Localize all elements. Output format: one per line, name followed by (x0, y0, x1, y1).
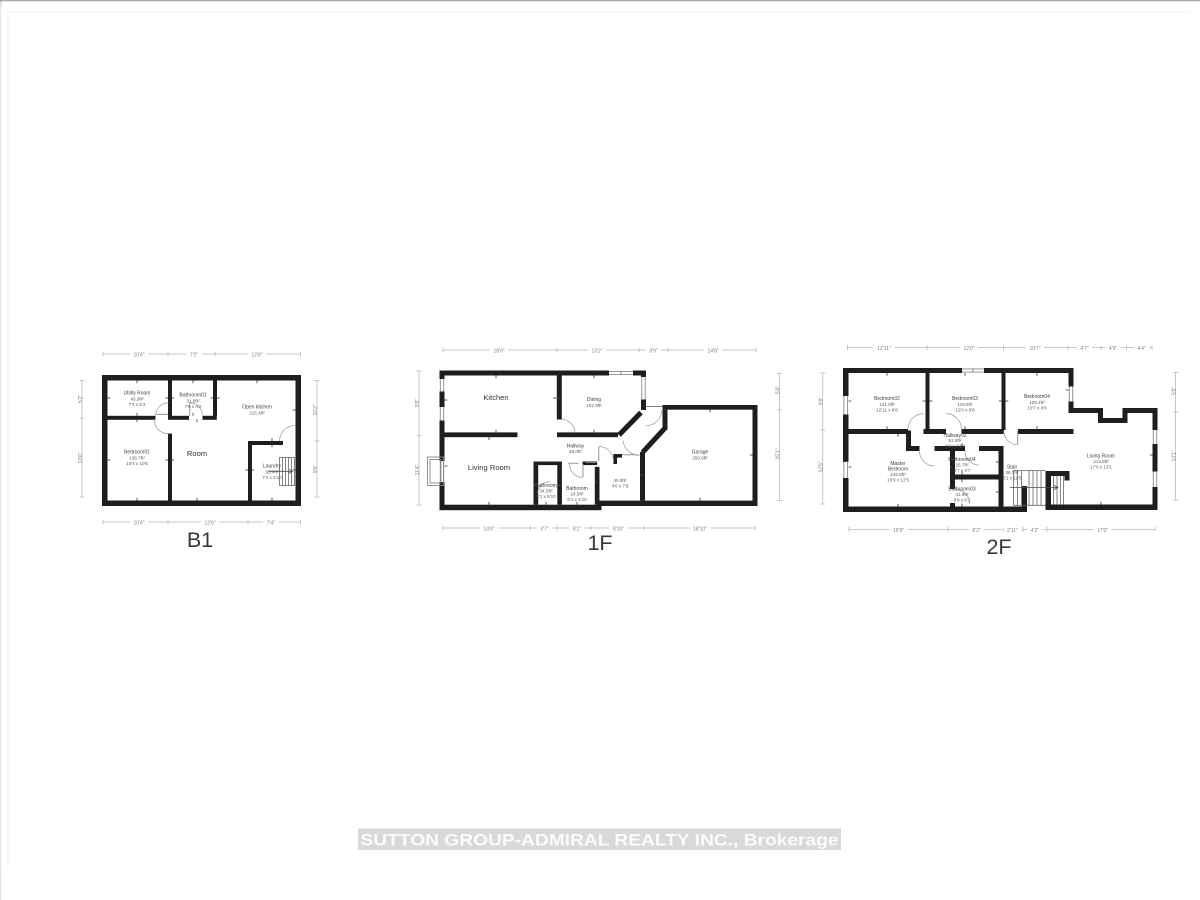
svg-text:12'5": 12'5" (819, 461, 825, 472)
svg-text:12'0": 12'0" (963, 346, 974, 352)
svg-text:4'4": 4'4" (1137, 346, 1146, 352)
svg-text:4'9": 4'9" (1109, 346, 1118, 352)
svg-text:212.8ft²: 212.8ft² (1093, 459, 1109, 464)
svg-text:4'7": 4'7" (1080, 346, 1089, 352)
svg-text:131.0ft²: 131.0ft² (879, 402, 895, 407)
svg-text:16'9": 16'9" (893, 528, 904, 534)
svg-text:41.9ft²: 41.9ft² (955, 492, 968, 497)
svg-text:12'0 x 9'8: 12'0 x 9'8 (955, 408, 975, 413)
svg-text:146.9ft²: 146.9ft² (890, 472, 906, 477)
svg-text:5'6": 5'6" (775, 386, 781, 395)
svg-text:B1: B1 (187, 528, 213, 552)
svg-text:1F: 1F (587, 531, 612, 555)
svg-text:15'1": 15'1" (775, 448, 781, 459)
svg-text:40.9ft²: 40.9ft² (613, 478, 626, 483)
svg-text:5'1 x 6'10: 5'1 x 6'10 (536, 494, 556, 499)
svg-text:7'8 x 4'2: 7'8 x 4'2 (185, 404, 202, 409)
svg-text:6'9 x 6'1: 6'9 x 6'1 (954, 498, 971, 503)
svg-text:18'9": 18'9" (493, 348, 504, 354)
svg-text:9'6": 9'6" (415, 399, 421, 408)
svg-text:48.0ft²: 48.0ft² (569, 449, 582, 454)
svg-text:10'4": 10'4" (133, 520, 144, 526)
svg-text:SUTTON GROUP-ADMIRAL REALTY IN: SUTTON GROUP-ADMIRAL REALTY INC., Broker… (361, 831, 839, 850)
svg-text:17'0 x 13'1: 17'0 x 13'1 (1090, 465, 1112, 470)
svg-text:8'2": 8'2" (972, 528, 981, 534)
svg-text:35.4ft²: 35.4ft² (265, 470, 278, 475)
svg-text:9'5": 9'5" (313, 465, 319, 474)
svg-text:8'10": 8'10" (613, 526, 624, 532)
svg-text:10'4": 10'4" (133, 352, 144, 358)
svg-text:10'7": 10'7" (1029, 346, 1040, 352)
svg-text:3'7": 3'7" (540, 526, 549, 532)
svg-text:5'2": 5'2" (78, 395, 84, 404)
svg-text:Room: Room (187, 449, 207, 458)
svg-text:9'8": 9'8" (819, 397, 825, 406)
svg-text:7'4": 7'4" (267, 520, 276, 526)
svg-text:13'6": 13'6" (78, 452, 84, 463)
svg-text:105.4ft²: 105.4ft² (1029, 400, 1045, 405)
svg-text:4'2": 4'2" (1031, 528, 1040, 534)
svg-text:12'8": 12'8" (251, 352, 262, 358)
svg-text:12'11 x 9'8: 12'11 x 9'8 (876, 408, 898, 413)
svg-text:18'10": 18'10" (693, 526, 707, 532)
svg-text:Kitchen: Kitchen (483, 393, 508, 402)
svg-text:8'1": 8'1" (573, 526, 582, 532)
svg-text:118.8ft²: 118.8ft² (957, 402, 973, 407)
svg-text:10'7 x 9'8: 10'7 x 9'8 (1027, 406, 1047, 411)
svg-text:6'1 x 4'10: 6'1 x 4'10 (567, 497, 587, 502)
svg-text:24.5ft²: 24.5ft² (570, 492, 583, 497)
svg-text:16'9 x 12'5: 16'9 x 12'5 (887, 478, 909, 483)
svg-text:17'0": 17'0" (1097, 528, 1108, 534)
svg-text:7'2": 7'2" (190, 352, 199, 358)
svg-text:8'4 x 3'10: 8'4 x 3'10 (945, 443, 965, 448)
svg-text:31.8ft²: 31.8ft² (186, 399, 199, 404)
svg-text:14'8": 14'8" (707, 348, 718, 354)
svg-text:45.9ft²: 45.9ft² (130, 397, 143, 402)
svg-text:Living Room: Living Room (468, 463, 510, 472)
svg-text:13'1": 13'1" (1172, 450, 1178, 461)
svg-text:12'6": 12'6" (204, 520, 215, 526)
svg-text:4'7 x 4'7: 4'7 x 4'7 (954, 468, 971, 473)
svg-text:25.7ft²: 25.7ft² (955, 463, 968, 468)
svg-text:2F: 2F (986, 535, 1011, 559)
svg-text:13'4 x 10'6: 13'4 x 10'6 (126, 461, 148, 466)
svg-text:7'4 x 6'2: 7'4 x 6'2 (129, 402, 146, 407)
svg-text:3'9": 3'9" (649, 348, 658, 354)
svg-text:14'8": 14'8" (483, 526, 494, 532)
svg-text:12'11": 12'11" (877, 346, 891, 352)
svg-text:11'4": 11'4" (415, 464, 421, 475)
svg-text:256.9ft²: 256.9ft² (692, 456, 708, 461)
svg-text:4'6 x 7'9: 4'6 x 7'9 (612, 484, 629, 489)
svg-text:7'4 x 4'10: 7'4 x 4'10 (262, 475, 282, 480)
svg-text:136.7ft²: 136.7ft² (129, 456, 145, 461)
svg-text:5'8": 5'8" (1172, 387, 1178, 396)
svg-text:102.9ft²: 102.9ft² (586, 403, 602, 408)
svg-text:215.4ft²: 215.4ft² (249, 411, 265, 416)
svg-text:10'2": 10'2" (313, 404, 319, 415)
svg-text:2'11": 2'11" (1007, 528, 1018, 534)
svg-text:34.5ft²: 34.5ft² (539, 489, 552, 494)
svg-text:13'2": 13'2" (591, 348, 602, 354)
svg-text:51.8ft²: 51.8ft² (948, 438, 961, 443)
svg-text:3'1 x 11'8: 3'1 x 11'8 (1002, 476, 1021, 481)
svg-text:36.3ft²: 36.3ft² (1005, 470, 1018, 475)
